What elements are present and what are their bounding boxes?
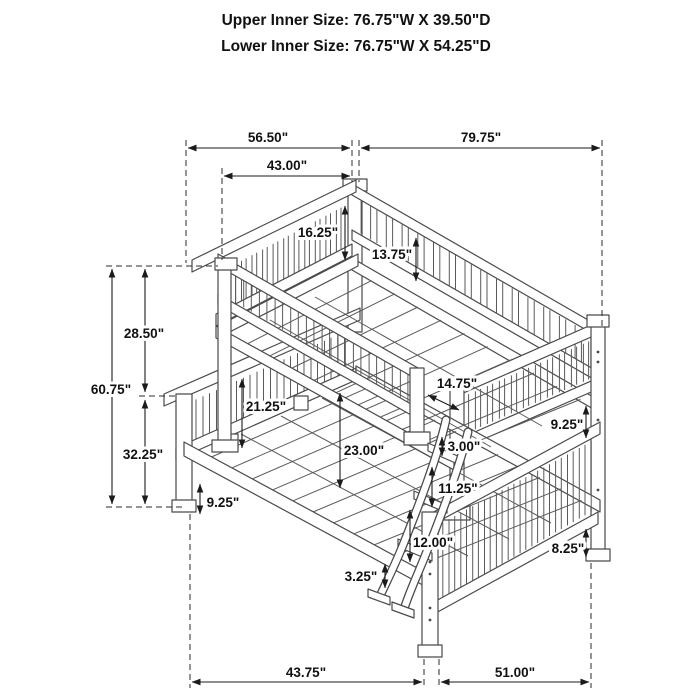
svg-text:21.25": 21.25" <box>246 399 286 414</box>
svg-text:12.00": 12.00" <box>413 535 453 550</box>
svg-text:9.25": 9.25" <box>551 417 584 432</box>
dim-upper-section-height: 28.50" <box>124 269 164 392</box>
dim-lower-length-span: 51.00" <box>441 665 589 682</box>
svg-text:23.00": 23.00" <box>344 443 384 458</box>
dim-ladder-top-gap: 3.00" <box>442 437 480 456</box>
dim-ladder-foot-height: 3.25" <box>345 564 385 588</box>
diagram-page: Upper Inner Size: 76.75"W X 39.50"D Lowe… <box>0 0 700 700</box>
svg-text:14.75": 14.75" <box>437 376 477 391</box>
svg-text:8.25": 8.25" <box>552 541 585 556</box>
svg-text:79.75": 79.75" <box>461 130 501 145</box>
dim-upper-head-span: 56.50" <box>188 130 350 148</box>
svg-text:51.00": 51.00" <box>495 665 535 680</box>
svg-text:13.75": 13.75" <box>372 247 412 262</box>
dim-total-height: 60.75" <box>91 269 131 504</box>
dim-lower-depth-span: 43.75" <box>192 665 422 682</box>
upper-inner-size-title: Upper Inner Size: 76.75"W X 39.50"D <box>222 12 491 29</box>
dim-upper-inner-span: 43.00" <box>224 158 350 176</box>
svg-text:56.50": 56.50" <box>248 130 288 145</box>
dim-lower-section-height: 32.25" <box>123 400 163 504</box>
svg-text:9.25": 9.25" <box>207 495 240 510</box>
svg-text:3.00": 3.00" <box>448 439 481 454</box>
lower-inner-size-title: Lower Inner Size: 76.75"W X 54.25"D <box>221 38 491 55</box>
svg-text:16.25": 16.25" <box>298 225 338 240</box>
bunk-bed-dimension-diagram: Upper Inner Size: 76.75"W X 39.50"D Lowe… <box>0 0 700 700</box>
title-block: Upper Inner Size: 76.75"W X 39.50"D Lowe… <box>221 12 491 55</box>
dim-left-leg-clearance: 9.25" <box>200 484 239 514</box>
svg-text:43.00": 43.00" <box>267 158 307 173</box>
svg-text:28.50": 28.50" <box>124 326 164 341</box>
svg-text:60.75": 60.75" <box>91 382 131 397</box>
svg-text:11.25": 11.25" <box>438 481 477 496</box>
dim-upper-length-span: 79.75" <box>361 130 600 148</box>
svg-text:43.75": 43.75" <box>286 665 326 680</box>
svg-text:3.25": 3.25" <box>345 569 378 584</box>
svg-text:32.25": 32.25" <box>123 447 163 462</box>
